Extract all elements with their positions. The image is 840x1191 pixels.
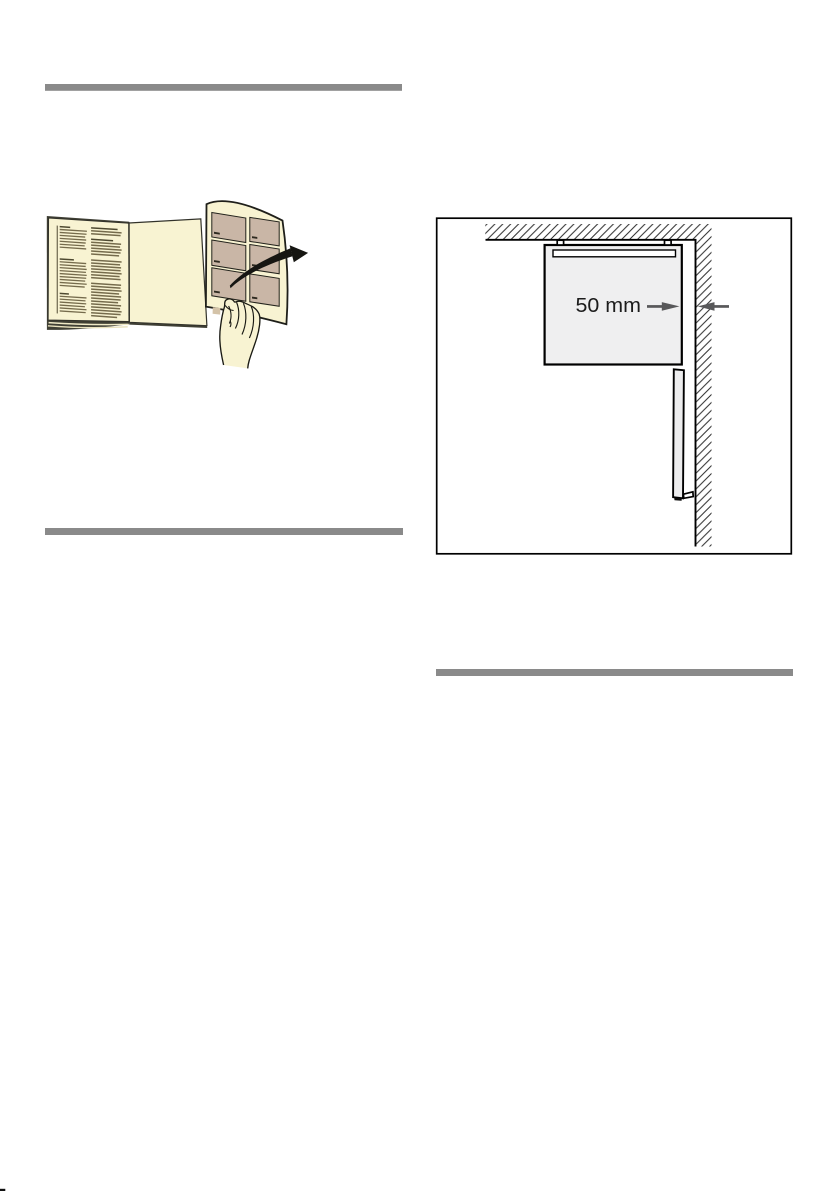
svg-text:50 mm: 50 mm bbox=[576, 294, 642, 317]
